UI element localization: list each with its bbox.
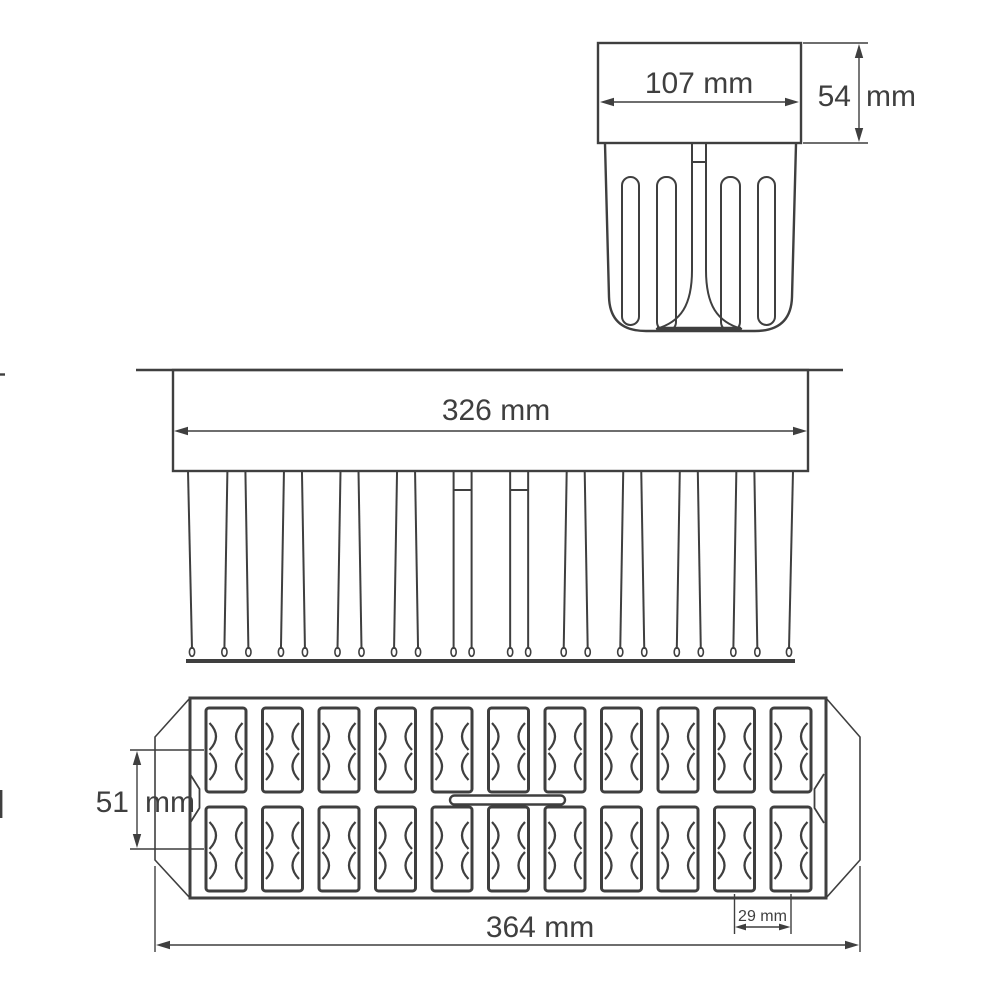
groove-capsule	[622, 177, 639, 325]
cell-arc	[236, 723, 243, 750]
fin-group	[188, 471, 793, 656]
cell-arc	[745, 852, 752, 879]
fin-line	[302, 471, 305, 649]
mold-cell	[263, 708, 303, 792]
cell-arc	[605, 852, 612, 879]
cell-arc	[775, 723, 782, 750]
cell-arc	[549, 822, 556, 849]
cell-arc	[436, 852, 443, 879]
fin-line	[641, 471, 644, 649]
dim-label-54-unit: mm	[866, 80, 916, 113]
cell-arc	[436, 753, 443, 780]
cell-arc	[266, 822, 273, 849]
cell-arc	[605, 822, 612, 849]
cell-arc	[801, 852, 808, 879]
cell-arc	[688, 852, 695, 879]
stick-channel-right	[706, 144, 742, 329]
cell-arc	[492, 753, 499, 780]
cell-arc	[718, 753, 725, 780]
cell-arc	[406, 723, 413, 750]
cell-arc	[605, 723, 612, 750]
cell-arc	[323, 822, 330, 849]
cell-arc	[662, 723, 669, 750]
cell-arc	[462, 852, 469, 879]
dimension-arrow	[600, 98, 614, 106]
fin-line	[415, 471, 418, 649]
drawing-canvas: 107 mm 54 mm 326 mm 51 mm	[0, 0, 1000, 1000]
cell-arc	[293, 753, 300, 780]
mold-cell	[771, 807, 811, 891]
fin-line	[281, 471, 284, 649]
dimension-arrow	[156, 941, 170, 949]
cell-arc	[462, 822, 469, 849]
mold-cell	[545, 708, 585, 792]
cell-arc	[266, 723, 273, 750]
side-notch-right	[815, 774, 825, 823]
cell-arc	[632, 822, 639, 849]
dim-label-107mm: 107 mm	[645, 67, 753, 100]
cell-arc	[688, 753, 695, 780]
cell-arc	[662, 753, 669, 780]
cell-arc	[266, 852, 273, 879]
fin-line	[564, 471, 567, 649]
fin-line	[359, 471, 362, 649]
cell-arc	[436, 723, 443, 750]
cell-arc	[379, 852, 386, 879]
dimension-arrow	[133, 834, 141, 848]
fin-line	[394, 471, 397, 649]
cell-arc	[492, 852, 499, 879]
dim-label-51: 51	[96, 786, 129, 819]
cell-arc	[718, 852, 725, 879]
front-view: 326 mm	[136, 370, 843, 661]
cell-arc	[323, 852, 330, 879]
cell-arc	[406, 753, 413, 780]
cell-arc	[575, 723, 582, 750]
top-view: 51 mm 29 mm 364 mm	[96, 698, 860, 952]
cell-arc	[210, 852, 217, 879]
dim-label-29mm: 29 mm	[738, 908, 787, 925]
fin-line	[733, 471, 736, 649]
cell-arc	[436, 822, 443, 849]
cell-arc	[549, 753, 556, 780]
cell-arc	[688, 723, 695, 750]
cell-arc	[745, 753, 752, 780]
cell-arc	[575, 753, 582, 780]
mold-technical-drawing: 107 mm 54 mm 326 mm 51 mm	[0, 0, 1000, 1000]
cell-arc	[349, 753, 356, 780]
cell-arc	[492, 822, 499, 849]
dimension-arrow	[845, 941, 859, 949]
dimension-arrow	[133, 751, 141, 765]
dim-label-54: 54	[818, 80, 851, 113]
mold-cell	[602, 807, 642, 891]
mold-cell	[545, 807, 585, 891]
stick-channel-left	[656, 144, 692, 329]
dimension-arrow	[785, 98, 799, 106]
side-view-body	[605, 144, 796, 331]
cell-arc	[632, 723, 639, 750]
fin-line	[789, 471, 793, 649]
cell-arc	[406, 822, 413, 849]
cell-arc	[236, 753, 243, 780]
cell-arc	[662, 822, 669, 849]
cell-arc	[718, 822, 725, 849]
fin-line	[188, 471, 192, 649]
cell-arc	[519, 822, 526, 849]
cell-arc	[462, 723, 469, 750]
fin-line	[585, 471, 588, 649]
cell-grid	[206, 708, 811, 891]
fin-line	[224, 471, 227, 649]
cell-arc	[236, 822, 243, 849]
groove-capsule	[657, 177, 676, 331]
mold-cell	[376, 807, 416, 891]
cell-arc	[210, 822, 217, 849]
mold-cell	[658, 708, 698, 792]
side-view: 107 mm 54 mm	[598, 43, 916, 331]
cell-arc	[775, 753, 782, 780]
dim-label-364mm: 364 mm	[486, 911, 594, 944]
mold-cell	[715, 807, 755, 891]
cell-arc	[210, 753, 217, 780]
cell-arc	[549, 723, 556, 750]
fin-line	[338, 471, 341, 649]
cell-arc	[379, 753, 386, 780]
cell-arc	[575, 822, 582, 849]
mold-cell	[771, 708, 811, 792]
cell-arc	[293, 822, 300, 849]
mold-cell	[263, 807, 303, 891]
mold-cell	[489, 708, 529, 792]
groove-capsule	[758, 177, 775, 325]
cell-arc	[379, 723, 386, 750]
cell-arc	[492, 723, 499, 750]
cell-arc	[605, 753, 612, 780]
mold-cell	[489, 807, 529, 891]
cell-arc	[266, 753, 273, 780]
cell-arc	[323, 723, 330, 750]
cell-arc	[236, 852, 243, 879]
cell-arc	[688, 822, 695, 849]
cell-arc	[323, 753, 330, 780]
cell-arc	[775, 852, 782, 879]
cell-arc	[519, 852, 526, 879]
cell-arc	[718, 723, 725, 750]
dimension-arrow	[174, 427, 188, 435]
cell-arc	[745, 822, 752, 849]
fin-line	[698, 471, 701, 649]
cell-arc	[349, 723, 356, 750]
dim-label-51-unit: mm	[145, 786, 195, 819]
cell-arc	[462, 753, 469, 780]
cell-arc	[519, 723, 526, 750]
cell-arc	[519, 753, 526, 780]
cell-arc	[801, 822, 808, 849]
cell-arc	[662, 852, 669, 879]
dimension-arrow	[855, 44, 863, 58]
fin-line	[677, 471, 680, 649]
fin-line	[620, 471, 623, 649]
mold-cell	[602, 708, 642, 792]
groove-capsule	[721, 177, 740, 331]
mold-cell	[206, 708, 246, 792]
cell-arc	[349, 852, 356, 879]
cell-arc	[549, 852, 556, 879]
cell-arc	[379, 822, 386, 849]
fin-line	[754, 471, 757, 649]
dimension-arrow	[793, 427, 807, 435]
cell-arc	[293, 852, 300, 879]
cell-arc	[775, 822, 782, 849]
cell-arc	[349, 822, 356, 849]
cell-arc	[801, 723, 808, 750]
dim-label-326mm: 326 mm	[442, 394, 550, 427]
mold-cell	[432, 708, 472, 792]
mold-cell	[658, 807, 698, 891]
mold-cell	[376, 708, 416, 792]
mold-cell	[715, 708, 755, 792]
mold-cell	[319, 807, 359, 891]
cell-arc	[632, 852, 639, 879]
center-stick-slot	[450, 796, 565, 805]
cell-arc	[293, 723, 300, 750]
cell-arc	[210, 723, 217, 750]
cell-arc	[801, 753, 808, 780]
cell-arc	[632, 753, 639, 780]
fin-line	[245, 471, 248, 649]
cell-arc	[575, 852, 582, 879]
mold-cell	[206, 807, 246, 891]
cell-arc	[745, 723, 752, 750]
dimension-arrow	[855, 128, 863, 142]
mold-cell	[432, 807, 472, 891]
cell-arc	[406, 852, 413, 879]
tray-inner-wall	[190, 698, 826, 898]
mold-cell	[319, 708, 359, 792]
